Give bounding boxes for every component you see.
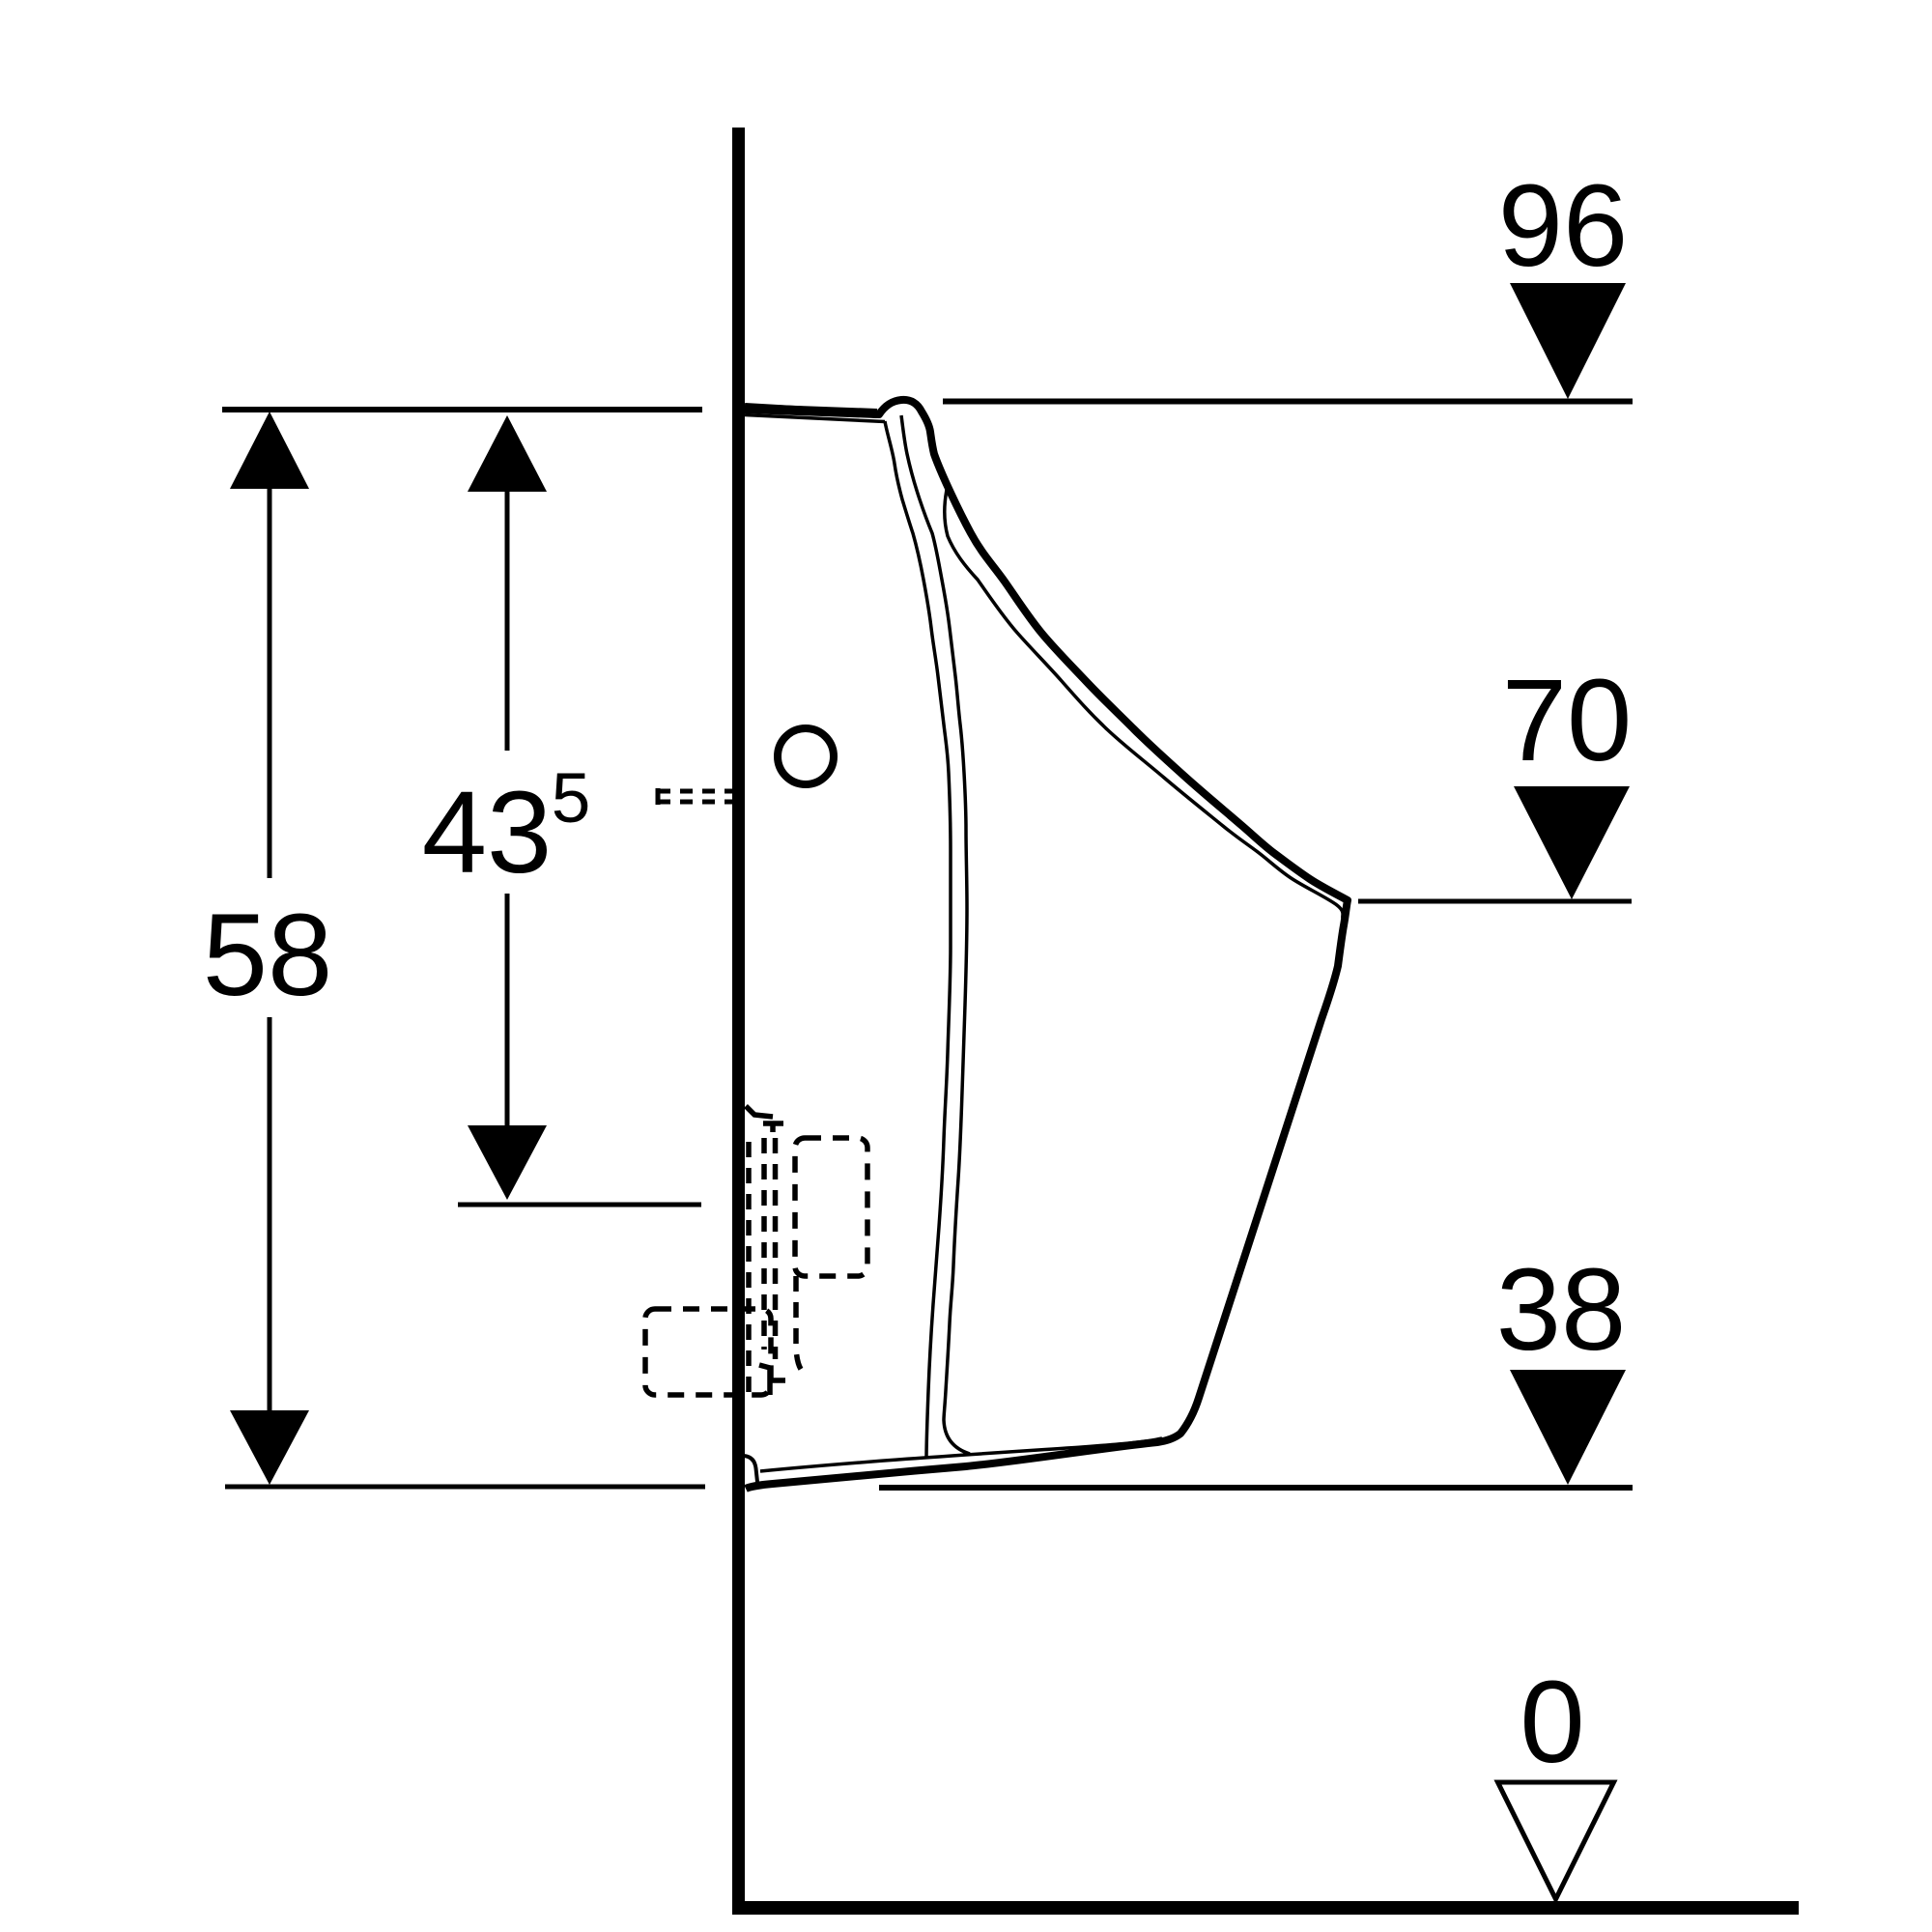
svg-text:58: 58 bbox=[203, 889, 333, 1020]
svg-text:5: 5 bbox=[552, 759, 591, 838]
svg-text:70: 70 bbox=[1502, 654, 1633, 785]
svg-text:0: 0 bbox=[1520, 1656, 1584, 1787]
svg-text:96: 96 bbox=[1498, 159, 1629, 291]
svg-text:43: 43 bbox=[422, 766, 553, 897]
svg-text:38: 38 bbox=[1496, 1243, 1627, 1375]
